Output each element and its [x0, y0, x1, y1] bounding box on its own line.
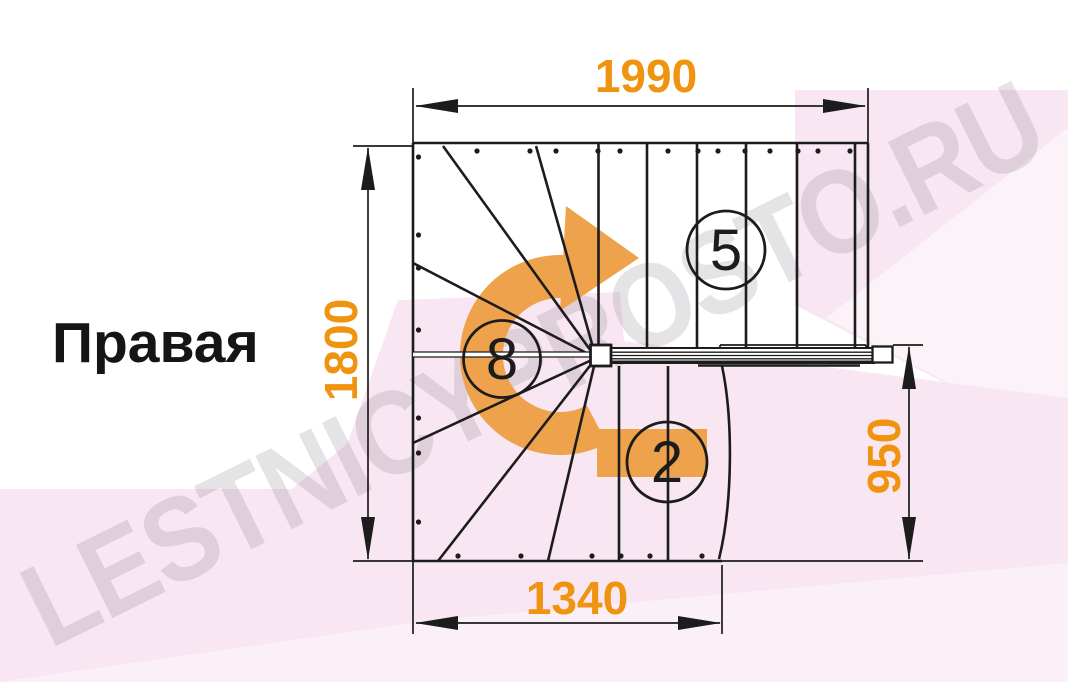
dimension-bottom-width: 1340 [413, 562, 722, 634]
center-post [591, 345, 612, 366]
dimension-right-height-label: 950 [858, 418, 910, 495]
winder-count-label: 8 [486, 327, 518, 392]
dimension-left-height: 1800 [315, 146, 413, 561]
lower-flight-count-label: 2 [651, 430, 683, 495]
dimension-left-height-label: 1800 [315, 299, 367, 401]
plan-title: Правая [52, 310, 259, 376]
staircase-plan-page: LESTNICYPROSTO.RU [0, 0, 1068, 682]
landing-beam [591, 345, 893, 366]
dimension-bottom-width-label: 1340 [526, 572, 628, 624]
wall-bracket [873, 347, 893, 363]
dimension-right-height: 950 [722, 345, 923, 561]
dimension-top-width-label: 1990 [595, 50, 697, 102]
upper-flight-count-label: 5 [710, 218, 742, 283]
dimension-top-width: 1990 [413, 50, 868, 143]
lower-flight-curved-edge [719, 366, 730, 559]
upper-flight-treads [599, 143, 798, 348]
